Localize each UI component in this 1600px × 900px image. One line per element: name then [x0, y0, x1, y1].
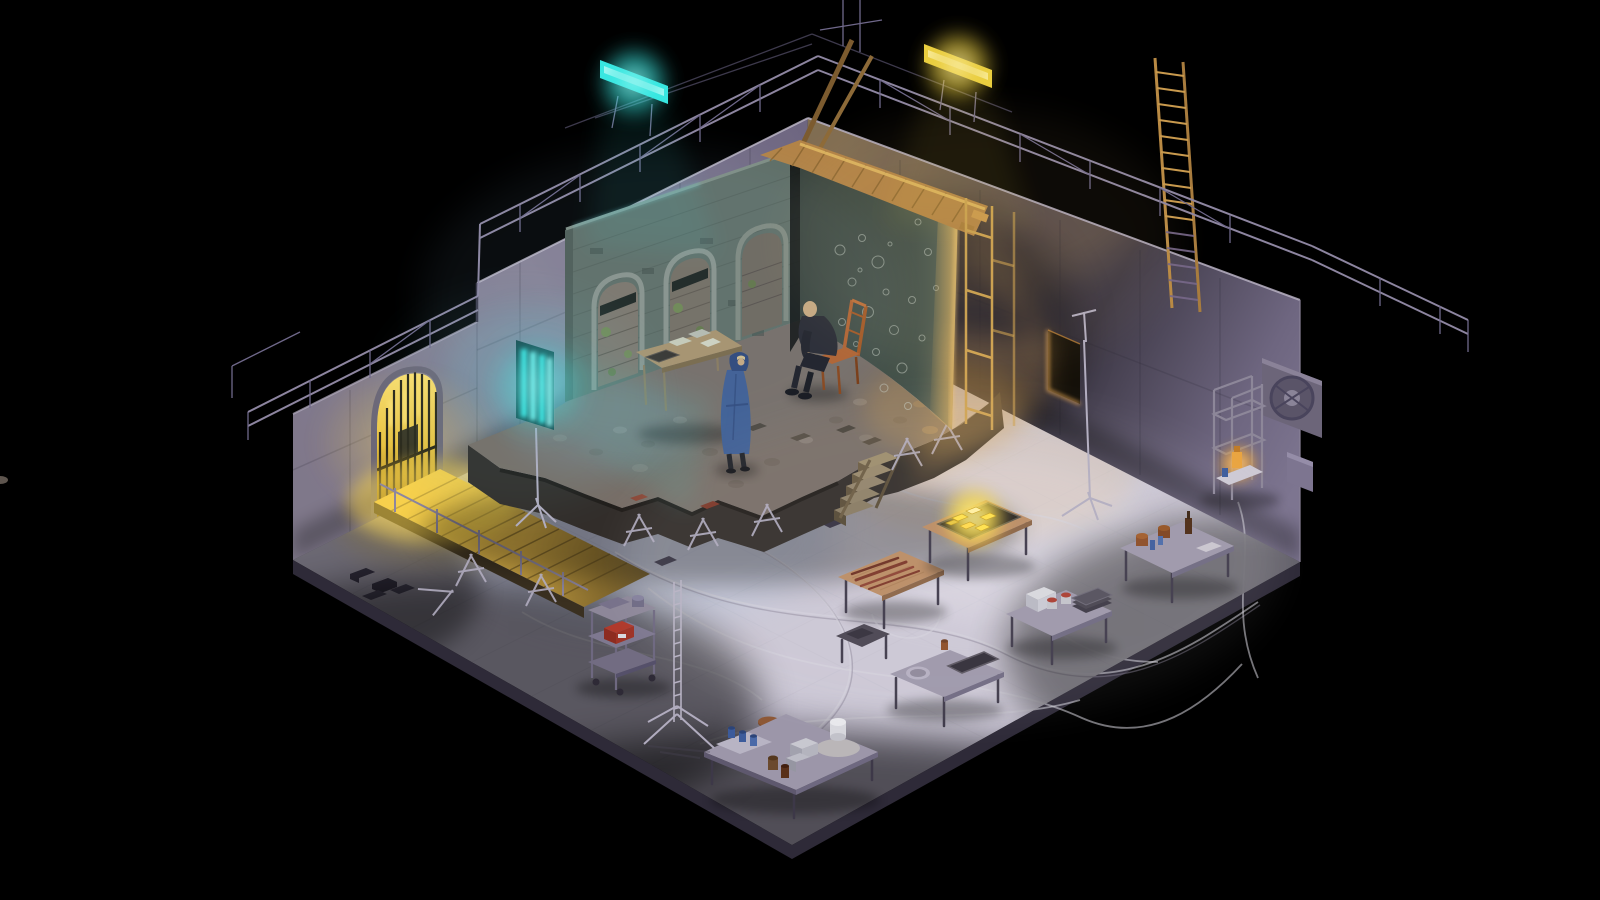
- utility-cart-part[interactable]: [593, 679, 600, 686]
- blue-jar-tray-part[interactable]: [739, 730, 746, 734]
- amber-jars-part[interactable]: [781, 764, 789, 768]
- scene-canvas[interactable]: [0, 0, 1600, 900]
- white-paint-can-part[interactable]: [830, 733, 846, 741]
- cobblestones-part: [853, 399, 867, 406]
- atmosphere-part: [380, 290, 660, 510]
- white-paint-can-part[interactable]: [830, 718, 846, 726]
- rack-lantern-part[interactable]: [1232, 452, 1242, 468]
- utility-cart-part[interactable]: [649, 675, 656, 682]
- red-box-part[interactable]: [618, 634, 626, 638]
- utility-cart-part[interactable]: [576, 678, 672, 698]
- atmosphere-part: [780, 110, 1180, 370]
- atmosphere-part: [620, 400, 1280, 720]
- white-paint-can[interactable]: [830, 718, 846, 741]
- paint-table-part[interactable]: [816, 739, 860, 757]
- blue-jar-tray-part[interactable]: [728, 726, 735, 730]
- blue-jar-tray-part[interactable]: [750, 734, 757, 738]
- amber-jars-part[interactable]: [768, 756, 778, 761]
- rack-lantern-part[interactable]: [1234, 446, 1240, 452]
- utility-cart-part[interactable]: [617, 689, 624, 696]
